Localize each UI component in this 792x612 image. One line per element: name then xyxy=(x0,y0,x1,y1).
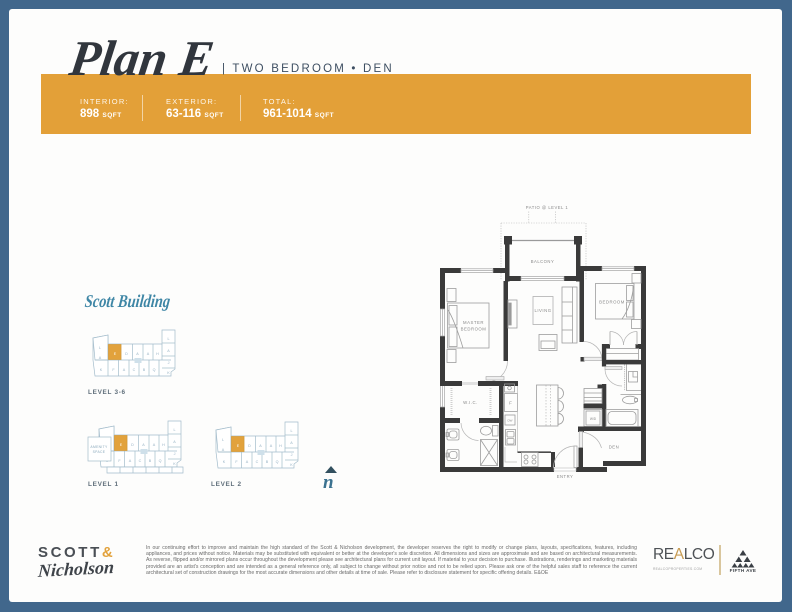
svg-text:LIVING: LIVING xyxy=(534,308,551,313)
svg-text:F: F xyxy=(509,401,512,406)
svg-text:DEN: DEN xyxy=(609,445,620,450)
svg-text:BEDROOM: BEDROOM xyxy=(599,300,625,305)
svg-text:W.I.C.: W.I.C. xyxy=(463,400,478,405)
svg-text:LEVEL 3-6: LEVEL 3-6 xyxy=(88,389,126,396)
svg-text:SPACE: SPACE xyxy=(93,450,106,454)
svg-text:W/D: W/D xyxy=(590,417,597,421)
svg-text:LEVEL 1: LEVEL 1 xyxy=(88,481,119,488)
svg-text:PATIO @ LEVEL 1: PATIO @ LEVEL 1 xyxy=(526,205,569,210)
svg-text:BALCONY: BALCONY xyxy=(531,259,555,264)
svg-text:LEVEL 2: LEVEL 2 xyxy=(211,481,242,488)
svg-text:MASTER: MASTER xyxy=(463,320,484,325)
svg-text:FIFTH AVE: FIFTH AVE xyxy=(730,568,757,573)
svg-text:AMENITY: AMENITY xyxy=(90,445,108,449)
svg-text:DW: DW xyxy=(508,419,513,423)
svg-text:ENTRY: ENTRY xyxy=(557,474,574,479)
svg-text:BEDROOM: BEDROOM xyxy=(461,327,487,332)
svg-text:n: n xyxy=(323,472,334,493)
